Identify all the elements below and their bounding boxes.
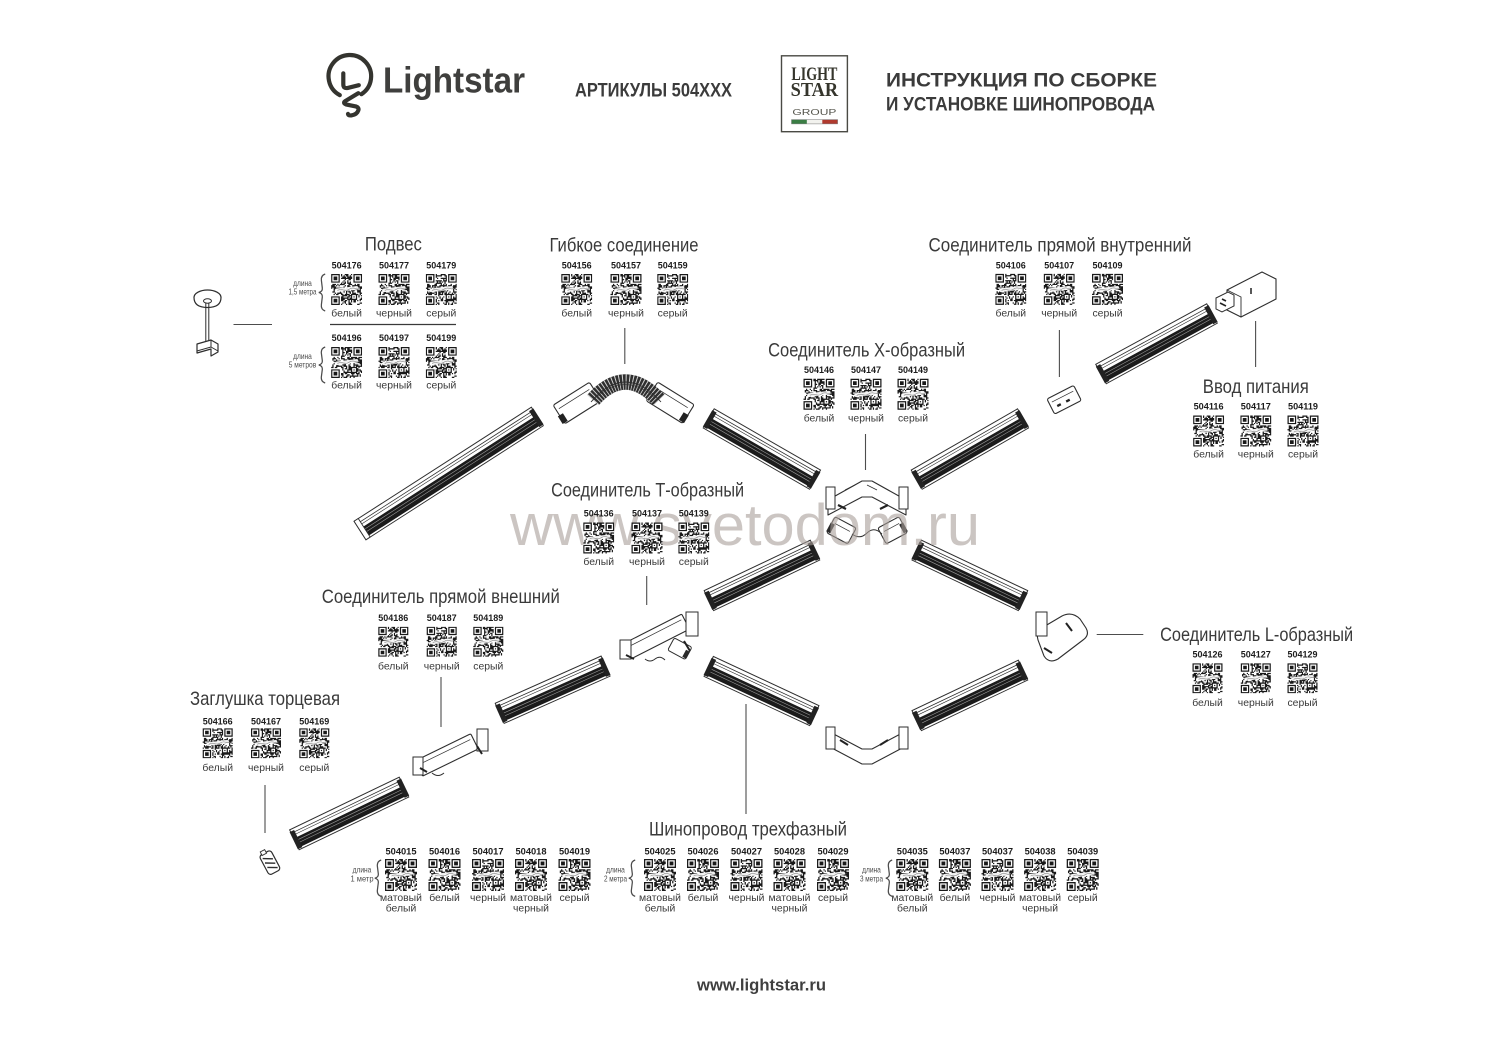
svg-text:белый: белый (202, 762, 233, 774)
svg-text:черный: черный (629, 557, 665, 568)
svg-text:504107: 504107 (1044, 260, 1074, 271)
svg-text:черный: черный (848, 414, 884, 425)
svg-text:504137: 504137 (632, 509, 662, 520)
svg-text:504126: 504126 (1193, 650, 1223, 661)
svg-text:белый: белый (995, 308, 1026, 320)
svg-text:белый: белый (688, 892, 719, 904)
svg-text:И УСТАНОВКЕ ШИНОПРОВОДА: И УСТАНОВКЕ ШИНОПРОВОДА (886, 94, 1155, 116)
svg-text:матовый: матовый (510, 893, 552, 904)
svg-text:504039: 504039 (1067, 847, 1098, 858)
svg-text:504026: 504026 (688, 847, 719, 858)
svg-text:504116: 504116 (1194, 402, 1224, 413)
svg-text:черный: черный (1041, 309, 1077, 320)
svg-text:Гибкое соединение: Гибкое соединение (550, 235, 699, 257)
svg-text:матовый: матовый (1019, 893, 1061, 904)
svg-text:серый: серый (1288, 450, 1318, 461)
svg-text:504139: 504139 (679, 509, 709, 520)
svg-text:Соединитель X-образный: Соединитель X-образный (768, 340, 965, 362)
svg-text:черный: черный (772, 904, 808, 915)
svg-text:504167: 504167 (251, 717, 281, 728)
svg-text:504028: 504028 (774, 847, 806, 858)
svg-text:черный: черный (424, 662, 460, 673)
svg-text:длина: длина (606, 866, 625, 875)
svg-text:504127: 504127 (1241, 650, 1271, 661)
svg-text:серый: серый (426, 309, 456, 320)
svg-text:черный: черный (470, 893, 506, 904)
svg-text:серый: серый (679, 557, 709, 568)
svg-text:504147: 504147 (851, 365, 881, 376)
svg-text:черный: черный (513, 904, 549, 915)
svg-text:504038: 504038 (1025, 847, 1057, 858)
svg-text:504035: 504035 (897, 847, 929, 858)
svg-text:504015: 504015 (386, 847, 418, 858)
svg-text:1,5 метра: 1,5 метра (289, 288, 317, 297)
svg-text:504109: 504109 (1093, 260, 1123, 271)
svg-text:Подвес: Подвес (365, 234, 422, 256)
svg-text:504025: 504025 (645, 847, 677, 858)
svg-text:504197: 504197 (379, 333, 409, 344)
svg-text:серый: серый (559, 893, 589, 904)
svg-text:серый: серый (1287, 698, 1317, 709)
svg-text:матовый: матовый (639, 893, 681, 904)
svg-text:белый: белый (897, 903, 928, 915)
svg-text:черный: черный (1238, 698, 1274, 709)
svg-text:504196: 504196 (332, 333, 362, 344)
svg-text:3 метра: 3 метра (860, 875, 883, 884)
svg-text:504169: 504169 (299, 717, 329, 728)
svg-text:белый: белый (429, 892, 460, 904)
svg-text:черный: черный (980, 893, 1016, 904)
svg-text:белый: белый (561, 308, 592, 320)
svg-text:504027: 504027 (731, 847, 762, 858)
svg-text:серый: серый (1068, 893, 1098, 904)
svg-text:длина: длина (353, 866, 372, 875)
svg-text:504179: 504179 (426, 260, 456, 271)
svg-text:www.svetodom.ru: www.svetodom.ru (509, 493, 980, 558)
svg-text:белый: белый (1192, 697, 1223, 709)
svg-text:черный: черный (248, 763, 284, 774)
svg-text:серый: серый (898, 414, 928, 425)
svg-text:Lightstar: Lightstar (383, 60, 525, 101)
svg-text:504146: 504146 (804, 365, 834, 376)
svg-text:504129: 504129 (1288, 650, 1318, 661)
svg-text:белый: белый (645, 903, 676, 915)
svg-text:белый: белый (331, 380, 362, 392)
svg-text:серый: серый (1092, 309, 1122, 320)
svg-text:серый: серый (299, 763, 329, 774)
svg-text:Заглушка торцевая: Заглушка торцевая (190, 688, 340, 710)
svg-text:504037: 504037 (939, 847, 970, 858)
svg-text:504016: 504016 (429, 847, 460, 858)
svg-text:серый: серый (426, 381, 456, 392)
svg-text:Соединитель прямой внутренний: Соединитель прямой внутренний (929, 235, 1192, 257)
svg-text:STAR: STAR (791, 80, 839, 101)
svg-text:2 метра: 2 метра (604, 875, 627, 884)
svg-text:1 метр: 1 метр (351, 875, 374, 884)
svg-text:www.lightstar.ru: www.lightstar.ru (696, 976, 826, 995)
svg-text:черный: черный (376, 381, 412, 392)
svg-text:серый: серый (818, 893, 848, 904)
svg-text:ИНСТРУКЦИЯ ПО СБОРКЕ: ИНСТРУКЦИЯ ПО СБОРКЕ (886, 70, 1157, 92)
svg-text:матовый: матовый (769, 893, 811, 904)
svg-text:Шинопровод трехфазный: Шинопровод трехфазный (649, 819, 847, 841)
svg-text:Ввод питания: Ввод питания (1203, 376, 1309, 398)
svg-text:матовый: матовый (380, 893, 422, 904)
svg-text:черный: черный (1238, 450, 1274, 461)
svg-text:белый: белый (378, 661, 409, 673)
svg-text:504159: 504159 (658, 260, 688, 271)
svg-text:черный: черный (376, 309, 412, 320)
svg-text:504117: 504117 (1241, 402, 1271, 413)
svg-text:белый: белый (331, 308, 362, 320)
svg-text:504018: 504018 (516, 847, 548, 858)
svg-text:504177: 504177 (379, 260, 409, 271)
svg-text:длина: длина (862, 866, 881, 875)
svg-text:серый: серый (658, 309, 688, 320)
svg-text:504187: 504187 (427, 613, 457, 624)
svg-text:504019: 504019 (559, 847, 590, 858)
svg-text:черный: черный (608, 309, 644, 320)
svg-text:черный: черный (1022, 904, 1058, 915)
svg-text:504166: 504166 (203, 717, 233, 728)
svg-text:Соединитель прямой внешний: Соединитель прямой внешний (322, 586, 560, 608)
svg-text:матовый: матовый (891, 893, 933, 904)
svg-text:Соединитель L-образный: Соединитель L-образный (1160, 624, 1353, 646)
svg-text:белый: белый (1193, 449, 1224, 461)
svg-text:504119: 504119 (1288, 402, 1318, 413)
svg-text:504176: 504176 (332, 260, 362, 271)
svg-text:504136: 504136 (584, 509, 614, 520)
svg-text:504156: 504156 (562, 260, 592, 271)
svg-text:белый: белый (386, 903, 417, 915)
svg-text:504037: 504037 (982, 847, 1013, 858)
svg-text:Соединитель Т-образный: Соединитель Т-образный (551, 480, 744, 502)
svg-text:504029: 504029 (818, 847, 849, 858)
svg-text:GROUP: GROUP (792, 107, 836, 117)
svg-text:белый: белый (940, 892, 971, 904)
svg-text:белый: белый (804, 413, 835, 425)
svg-text:504186: 504186 (378, 613, 408, 624)
svg-text:504189: 504189 (473, 613, 503, 624)
svg-text:504149: 504149 (898, 365, 928, 376)
svg-text:серый: серый (473, 662, 503, 673)
svg-text:504199: 504199 (426, 333, 456, 344)
svg-text:504017: 504017 (473, 847, 504, 858)
svg-text:504106: 504106 (996, 260, 1026, 271)
svg-text:504157: 504157 (611, 260, 641, 271)
svg-text:черный: черный (729, 893, 765, 904)
svg-text:белый: белый (583, 556, 614, 568)
svg-text:АРТИКУЛЫ 504XXX: АРТИКУЛЫ 504XXX (575, 81, 732, 102)
svg-text:5 метров: 5 метров (289, 361, 317, 370)
